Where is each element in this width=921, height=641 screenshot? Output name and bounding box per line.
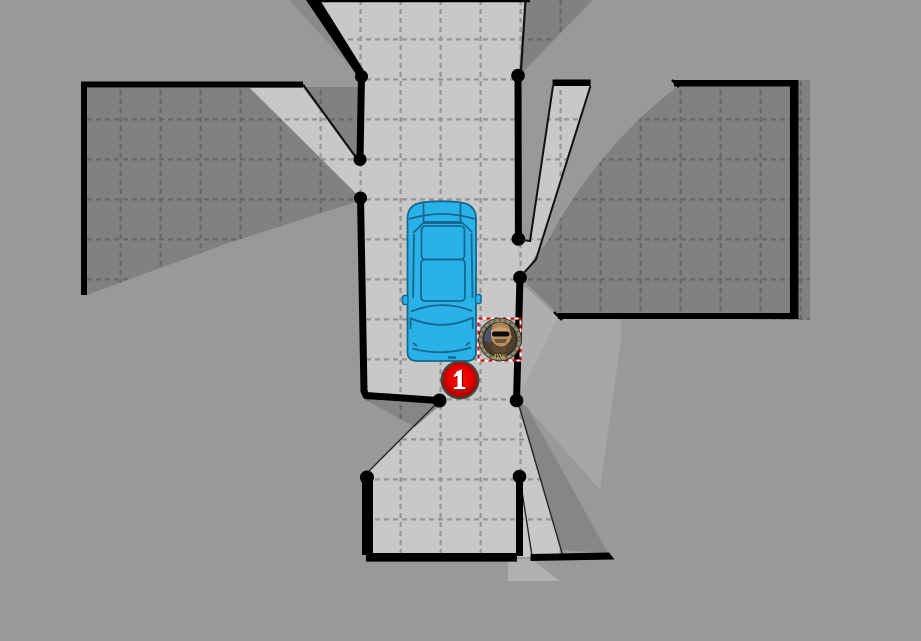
svg-text:DW: DW — [494, 353, 506, 361]
